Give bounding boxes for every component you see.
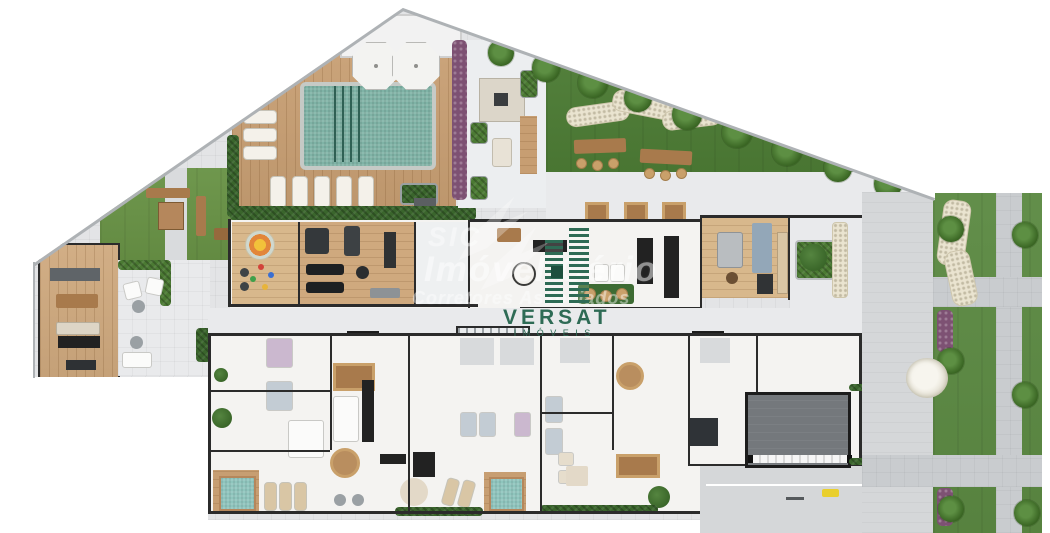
watermark-line2: Imóvel Cério <box>424 250 658 290</box>
planter-box <box>470 176 488 200</box>
tv-rug <box>752 223 772 273</box>
bed <box>514 412 531 437</box>
kitchen-counter <box>664 236 679 298</box>
playground-structure <box>146 188 190 198</box>
kettlebell <box>356 266 369 279</box>
sun-lounger <box>292 176 308 208</box>
gym-machine <box>305 228 329 254</box>
logo-tower <box>569 228 589 306</box>
pool-lane-line <box>350 86 352 162</box>
pouf <box>240 282 249 291</box>
gym-bench <box>306 264 344 275</box>
wall <box>702 215 862 218</box>
palm-tree-icon <box>938 496 964 522</box>
bed <box>460 412 477 437</box>
gym-mat <box>370 288 400 298</box>
bed <box>266 381 293 411</box>
sun-lounger <box>243 128 277 142</box>
pool-lane-line <box>342 86 344 162</box>
side-table <box>334 494 346 506</box>
wall <box>540 412 612 414</box>
kitchen-counter <box>362 380 374 442</box>
bathroom-dark <box>688 418 718 446</box>
wall <box>208 450 330 452</box>
purple-hedge <box>452 40 467 200</box>
kitchen-island <box>413 452 435 477</box>
stool <box>608 158 619 169</box>
armchair <box>144 276 164 296</box>
toy <box>250 276 256 282</box>
stool <box>660 170 671 181</box>
swimming-pool <box>300 82 436 170</box>
brand-logo-icon <box>543 228 595 308</box>
blossom-tree-icon <box>906 358 948 398</box>
pebble-strip <box>832 222 848 298</box>
sun-lounger <box>314 176 330 208</box>
planter-box <box>470 122 488 144</box>
site-mask-leftedge <box>0 262 33 533</box>
brand-name: VERSAT <box>503 306 603 330</box>
road-marking <box>786 497 804 500</box>
toy <box>262 284 268 290</box>
side-table <box>352 494 364 506</box>
sofa <box>717 232 743 268</box>
loveseat <box>122 352 152 368</box>
palm-tree-icon <box>1012 222 1038 248</box>
wall <box>208 390 330 392</box>
floor-plan-canvas: SIC Imóvel Cério Corretores Associados V… <box>0 0 1050 533</box>
palm-tree-icon <box>1012 382 1038 408</box>
sidewalk-path <box>862 455 1042 487</box>
logo-door <box>551 266 563 278</box>
gourmet-bench <box>66 360 96 370</box>
sun-lounger <box>270 176 286 208</box>
wall <box>208 511 708 514</box>
gym-bench <box>306 282 344 293</box>
wall <box>612 335 614 450</box>
hedge-row <box>230 206 476 220</box>
stool <box>644 168 655 179</box>
gourmet-sofa <box>56 322 100 335</box>
watermark-line1: SIC <box>428 222 482 253</box>
tv-sideboard <box>757 274 773 294</box>
sun-lounger <box>358 176 374 208</box>
gym-machine <box>344 226 360 256</box>
stool <box>592 160 603 171</box>
plunge-pool <box>489 477 524 511</box>
bed <box>545 428 563 455</box>
wall <box>788 215 790 300</box>
palm-tree-icon <box>1014 500 1040 526</box>
dining-table-round <box>616 362 644 390</box>
sun-lounger <box>336 176 352 208</box>
sun-lounger <box>243 146 277 160</box>
sun-lounger <box>294 482 307 511</box>
wall <box>208 333 211 514</box>
wall <box>540 335 542 511</box>
side-table <box>132 300 145 313</box>
fire-pit <box>494 93 508 106</box>
sun-lounger <box>264 482 277 511</box>
wall <box>688 335 690 465</box>
tree-icon <box>800 244 827 271</box>
bench-sideboard <box>777 232 788 294</box>
kitchen-counter <box>380 454 406 464</box>
brand-subtitle: I M Ó V E I S <box>501 328 605 338</box>
dining-table <box>616 454 660 478</box>
boundary-line <box>33 262 35 378</box>
sofa <box>333 396 359 442</box>
wall <box>330 335 332 450</box>
bed <box>266 338 293 368</box>
gourmet-counter <box>50 268 100 281</box>
plunge-pool <box>219 476 256 511</box>
wall <box>408 335 410 511</box>
coffee-table <box>726 272 738 284</box>
gourmet-island <box>58 336 100 348</box>
garden-table <box>574 138 626 154</box>
dining-table-round <box>330 448 360 478</box>
sun-lounger <box>279 482 292 511</box>
garden-table <box>640 149 693 166</box>
side-table <box>130 336 143 349</box>
umbrella-icon <box>392 42 440 90</box>
playground-slide <box>196 196 206 236</box>
toy <box>258 264 264 270</box>
stool <box>576 158 587 169</box>
speed-bump <box>822 489 839 497</box>
stool <box>676 168 687 179</box>
pouf <box>240 268 249 277</box>
rug-round <box>400 478 428 506</box>
palm-tree-icon <box>938 216 964 242</box>
massage-table <box>492 138 512 167</box>
gym-rack <box>384 232 396 268</box>
bed-master <box>288 420 324 458</box>
bathroom <box>500 338 534 365</box>
wall <box>228 219 231 307</box>
wood-walk-strip <box>520 116 537 174</box>
bathroom <box>700 338 730 363</box>
armchair <box>558 452 574 466</box>
bathroom <box>560 338 590 363</box>
hedge-row <box>227 135 239 217</box>
rug <box>566 466 588 486</box>
wall <box>700 215 702 310</box>
gourmet-table <box>56 294 98 308</box>
bed <box>479 412 496 437</box>
purple-hedge <box>937 310 953 352</box>
wall <box>298 222 300 306</box>
pool-lane-line <box>334 86 336 162</box>
ramp-gate <box>748 455 852 463</box>
kids-play-rug <box>245 230 275 260</box>
playground-tower <box>158 202 184 230</box>
bed <box>545 396 563 423</box>
plant-icon <box>212 408 232 428</box>
bathroom <box>460 338 494 365</box>
toy <box>268 272 274 278</box>
pool-lane-line <box>358 86 360 162</box>
plant-icon <box>214 368 228 382</box>
